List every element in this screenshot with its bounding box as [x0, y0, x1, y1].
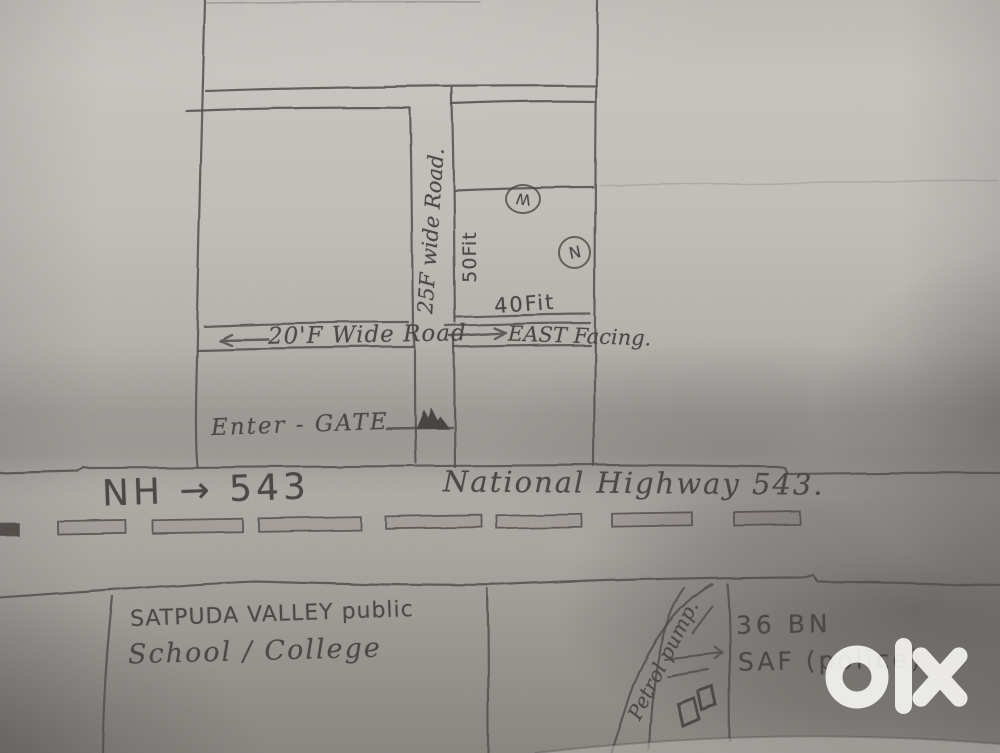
- compass-north-letter: N: [567, 242, 583, 263]
- school-block-right-edge: [488, 589, 489, 753]
- lane-dash: [0, 523, 18, 535]
- nh-number-label: NH → 543: [101, 466, 310, 514]
- plot-depth-label: 50Fit: [459, 221, 481, 293]
- lane-dash: [386, 515, 482, 529]
- lower-right-plot-left-edge: [454, 334, 455, 467]
- compass-west-letter: W: [515, 189, 532, 209]
- lane-dash: [58, 520, 126, 534]
- compass-north-marker: N: [558, 236, 591, 269]
- compass-west-marker: W: [505, 184, 541, 214]
- hand-drawn-plot-map-photo: 25F wide Road. 50Fit W N 40Fit 20'F Wide…: [0, 0, 1000, 753]
- lane-dash: [153, 519, 243, 534]
- battalion-label-line2: SAF (police): [738, 644, 924, 676]
- lane-dash: [734, 511, 800, 525]
- lane-dash: [497, 514, 582, 528]
- east-facing-label: EAST Facing.: [508, 322, 652, 351]
- battalion-label-line1: 36 BN: [736, 609, 832, 640]
- lane-dash: [612, 512, 692, 526]
- lane-dash: [259, 517, 361, 532]
- highway-name-label: National Highway 543.: [443, 464, 825, 501]
- school-label-line2: School / College: [128, 633, 383, 671]
- plot-width-label: 40Fit: [493, 290, 556, 318]
- cross-road-label: 20'F Wide Road: [268, 320, 467, 349]
